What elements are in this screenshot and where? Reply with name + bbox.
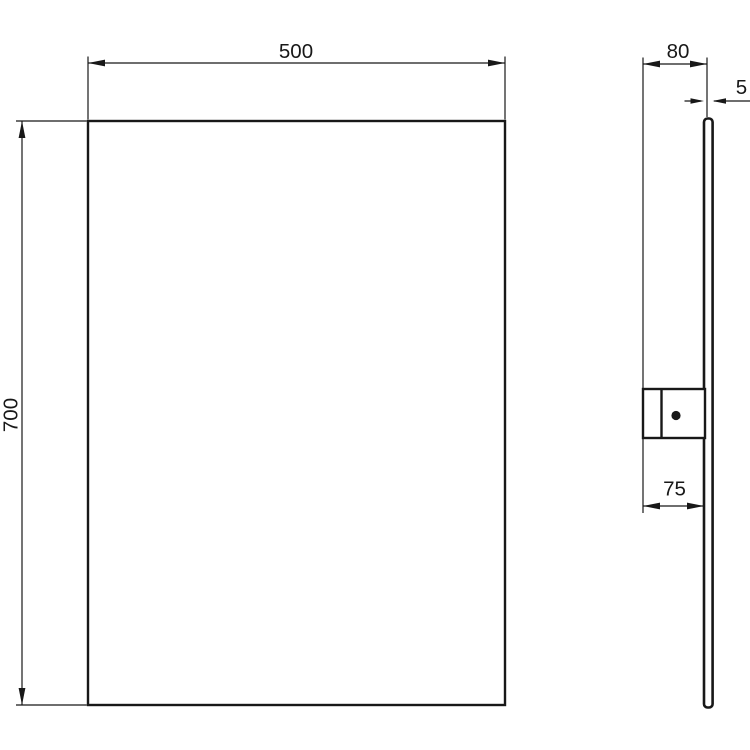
dim-height-label: 700 [0,398,23,432]
front-panel-outline [88,121,505,705]
dimension-drawing: 500 700 80 [0,0,750,750]
dim-bracket-offset-label: 75 [663,478,686,501]
dim-depth-label: 80 [667,40,690,63]
dim-width-label: 500 [279,40,313,63]
dim-thickness-label: 5 [736,76,747,99]
mounting-hole-dot-icon [671,411,680,420]
